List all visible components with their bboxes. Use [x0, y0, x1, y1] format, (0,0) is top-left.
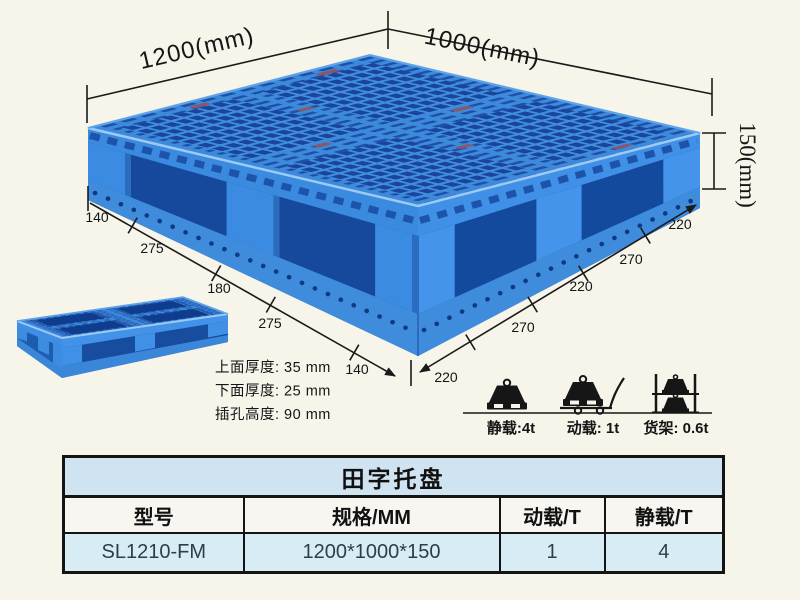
- table-row: SL1210-FM 1200*1000*150 1 4: [64, 533, 724, 573]
- note-top-thickness: 上面厚度: 35 mm: [215, 359, 331, 376]
- static-load-label: 静载:4t: [487, 419, 535, 437]
- cell-static-load: 4: [605, 533, 724, 573]
- spec-table-header-row: 型号 规格/MM 动载/T 静载/T: [64, 497, 724, 534]
- col-header-spec: 规格/MM: [244, 497, 500, 534]
- dim-label-length: 1200(mm): [136, 22, 256, 75]
- dim-value: 180: [207, 280, 231, 296]
- cell-model: SL1210-FM: [64, 533, 244, 573]
- dynamic-load-trolley-icon: [560, 376, 624, 414]
- cell-dynamic-load: 1: [500, 533, 605, 573]
- spec-table: 田字托盘 型号 规格/MM 动载/T 静载/T SL1210-FM 1200*1…: [62, 455, 725, 574]
- dim-value: 220: [434, 369, 458, 385]
- dim-value: 270: [619, 251, 643, 267]
- dim-value: 220: [569, 278, 593, 294]
- dim-value: 220: [668, 216, 692, 232]
- spec-table-title-row: 田字托盘: [64, 457, 724, 497]
- rack-load-label: 货架: 0.6t: [643, 419, 708, 437]
- col-header-dynamic-load: 动载/T: [500, 497, 605, 534]
- col-header-model: 型号: [64, 497, 244, 534]
- note-fork-height: 插孔高度: 90 mm: [215, 406, 331, 423]
- cell-spec: 1200*1000*150: [244, 533, 500, 573]
- spec-table-title: 田字托盘: [64, 457, 724, 497]
- dim-value: 270: [511, 319, 535, 335]
- dynamic-load-label: 动载: 1t: [567, 419, 620, 437]
- thickness-notes: 上面厚度: 35 mm 下面厚度: 25 mm 插孔高度: 90 mm: [215, 359, 331, 423]
- note-bottom-thickness: 下面厚度: 25 mm: [215, 383, 331, 400]
- static-load-weight-icon: [487, 380, 527, 410]
- rack-load-shelf-icon: [652, 374, 699, 413]
- dim-value: 140: [85, 209, 109, 225]
- dim-value: 140: [345, 361, 369, 377]
- dim-value: 275: [258, 315, 282, 331]
- pallet-spec-sheet: 1200(mm) 1000(mm) 150(mm) 140 275 180 27…: [0, 0, 800, 600]
- load-ratings: 静载:4t 动载: 1t 货架: 0.6t: [463, 374, 712, 437]
- dim-label-width: 1000(mm): [422, 23, 542, 73]
- dim-value: 275: [140, 240, 164, 256]
- col-header-static-load: 静载/T: [605, 497, 724, 534]
- dim-label-height: 150(mm): [735, 122, 760, 208]
- small-pallet: [17, 297, 228, 378]
- pallet-illustration: 1200(mm) 1000(mm) 150(mm) 140 275 180 27…: [0, 0, 800, 450]
